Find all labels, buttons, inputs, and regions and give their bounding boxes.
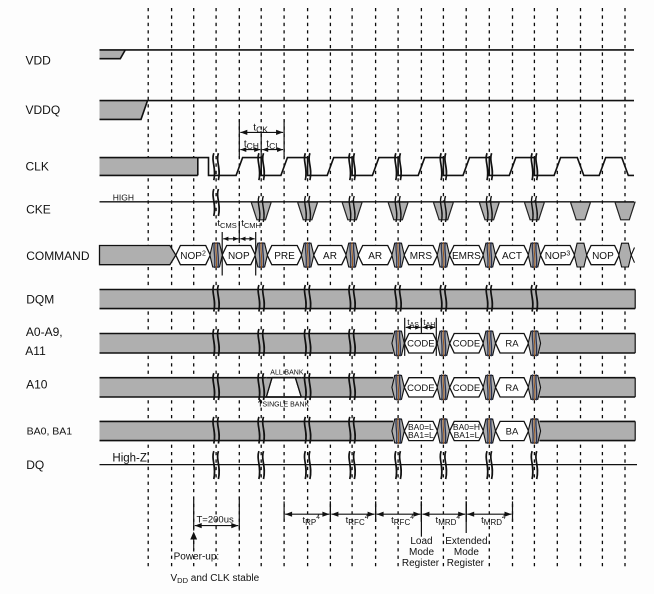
svg-text:T=200us: T=200us [197, 515, 234, 526]
svg-text:A0-A9,: A0-A9, [26, 325, 63, 339]
svg-text:EMRS: EMRS [452, 251, 481, 262]
svg-text:Load: Load [410, 536, 432, 547]
svg-text:CODE: CODE [407, 339, 434, 350]
svg-text:PRE: PRE [274, 251, 295, 262]
svg-text:DQM: DQM [26, 292, 54, 306]
svg-text:Register: Register [402, 558, 440, 569]
svg-text:ALL BANK: ALL BANK [270, 369, 304, 376]
svg-text:A11: A11 [25, 344, 46, 358]
svg-text:BA1=L: BA1=L [454, 430, 480, 440]
svg-text:CKE: CKE [26, 203, 51, 217]
svg-text:CODE: CODE [453, 383, 480, 394]
svg-text:Mode: Mode [454, 547, 479, 558]
svg-text:High-Z: High-Z [112, 453, 147, 465]
svg-text:tCH: tCH [244, 139, 259, 151]
svg-text:ACT: ACT [502, 251, 522, 262]
svg-text:RA: RA [505, 383, 519, 394]
svg-text:CODE: CODE [453, 339, 480, 350]
svg-text:HIGH: HIGH [113, 192, 134, 202]
svg-text:Mode: Mode [409, 547, 434, 558]
svg-text:Power-up:: Power-up: [174, 551, 220, 562]
svg-text:BA: BA [506, 426, 519, 437]
svg-text:RA: RA [505, 339, 519, 350]
svg-text:NOP: NOP [592, 251, 614, 262]
svg-text:AR: AR [368, 251, 382, 262]
svg-text:A10: A10 [26, 377, 48, 391]
svg-text:MRS: MRS [410, 251, 433, 262]
svg-text:DQ: DQ [26, 458, 44, 472]
svg-text:VDDQ: VDDQ [26, 103, 61, 117]
svg-text:tCL: tCL [266, 139, 280, 151]
svg-text:VDD: VDD [26, 53, 52, 67]
svg-text:SINGLE BANK: SINGLE BANK [263, 402, 310, 409]
svg-text:BA0, BA1: BA0, BA1 [27, 425, 73, 437]
svg-text:tCK: tCK [253, 122, 268, 134]
svg-text:BA1=L: BA1=L [408, 430, 434, 440]
svg-text:NOP: NOP [228, 251, 250, 262]
svg-text:AR: AR [323, 251, 337, 262]
svg-text:CODE: CODE [407, 383, 434, 394]
svg-text:CLK: CLK [26, 159, 49, 173]
svg-text:COMMAND: COMMAND [26, 249, 90, 263]
svg-text:Register: Register [447, 558, 485, 569]
svg-text:Extended: Extended [445, 536, 487, 547]
